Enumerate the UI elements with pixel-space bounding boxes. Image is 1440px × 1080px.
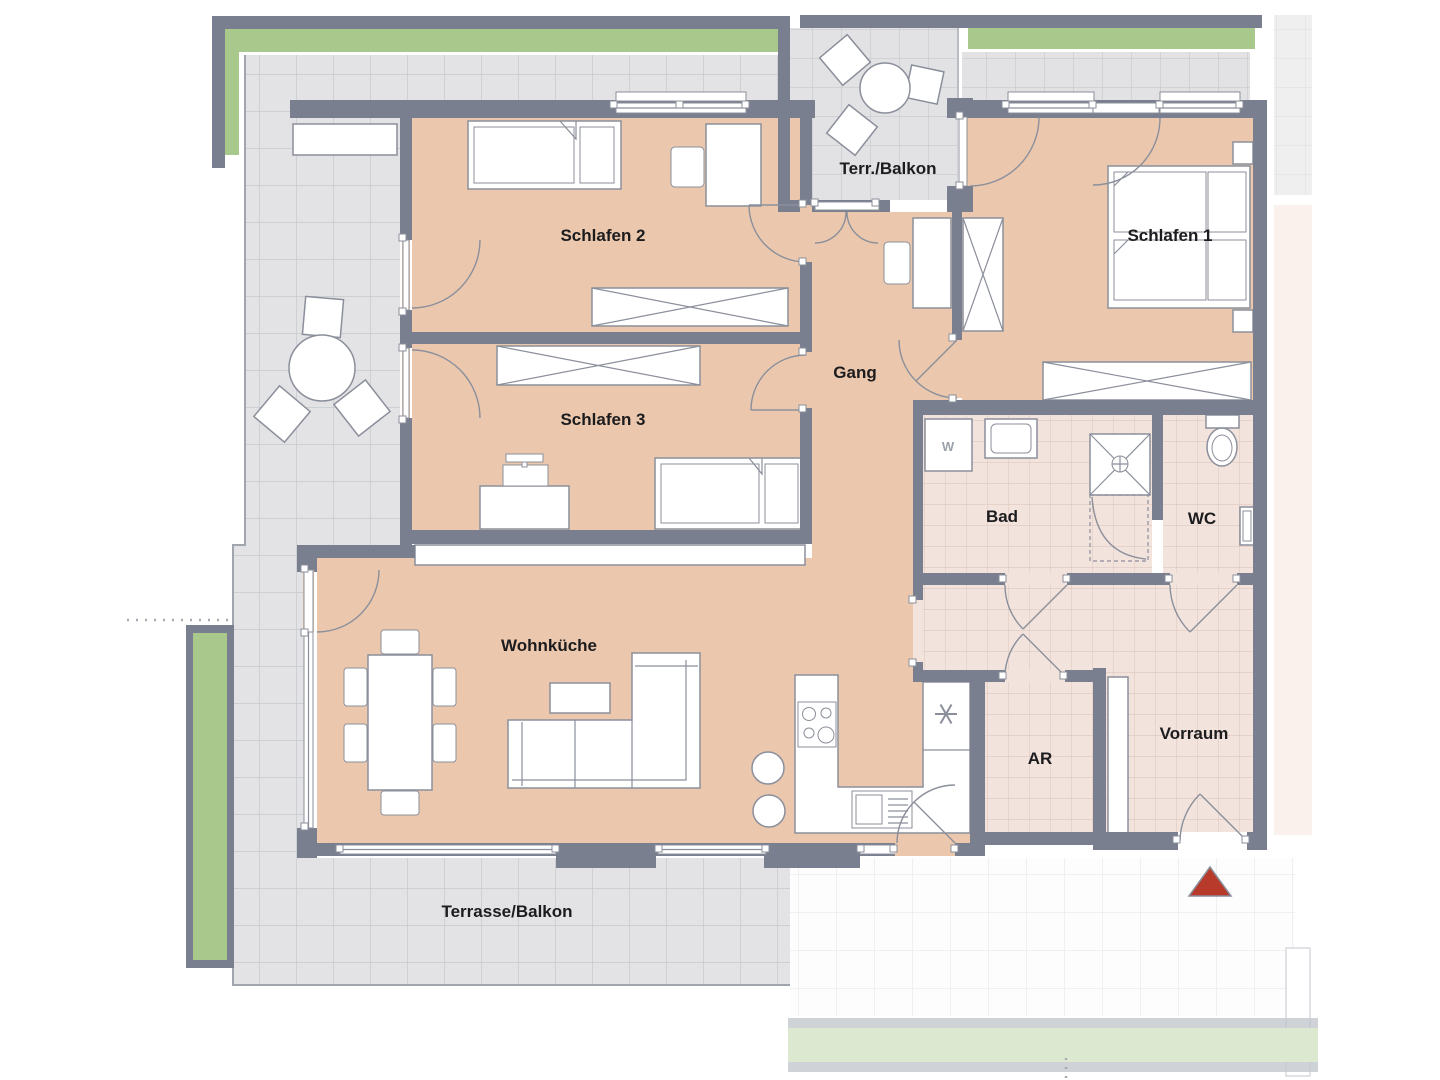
sink-icon — [852, 791, 912, 828]
room-label-vorraum: Vorraum — [1160, 724, 1229, 743]
room-label-bad: Bad — [986, 507, 1018, 526]
room-label-schlafen-2: Schlafen 2 — [560, 226, 645, 245]
wardrobe-icon — [497, 346, 700, 385]
coffee-table-icon — [550, 683, 610, 713]
room-label-terrasse-balkon: Terrasse/Balkon — [441, 902, 572, 921]
hob-icon — [798, 702, 836, 747]
closet-icon — [1108, 677, 1128, 838]
wardrobe-icon — [592, 288, 788, 326]
single-bed-icon — [468, 121, 621, 189]
planter-left — [186, 625, 234, 968]
room-label-schlafen-1: Schlafen 1 — [1127, 226, 1212, 245]
room-label-wc: WC — [1188, 509, 1216, 528]
washbasin-icon — [1240, 507, 1254, 545]
wardrobe-icon — [1043, 362, 1251, 400]
room-label-wohnkueche: Wohnküche — [501, 636, 597, 655]
planter-box-icon — [293, 124, 397, 155]
sideboard-icon — [415, 545, 805, 565]
floorplan: Schlafen 2 Schlafen 3 Schlafen 1 Gang Ba… — [0, 0, 1440, 1080]
planter-bottom-faded — [788, 1018, 1318, 1072]
single-bed-icon — [655, 458, 804, 529]
room-label-gang: Gang — [833, 363, 876, 382]
washing-machine-label: W — [942, 439, 955, 454]
wardrobe-icon — [963, 218, 1003, 331]
room-label-schlafen-3: Schlafen 3 — [560, 410, 645, 429]
room-label-terr-balkon: Terr./Balkon — [840, 159, 937, 178]
washbasin-icon — [985, 419, 1037, 458]
room-label-ar: AR — [1028, 749, 1053, 768]
toilet-icon — [1206, 415, 1239, 466]
